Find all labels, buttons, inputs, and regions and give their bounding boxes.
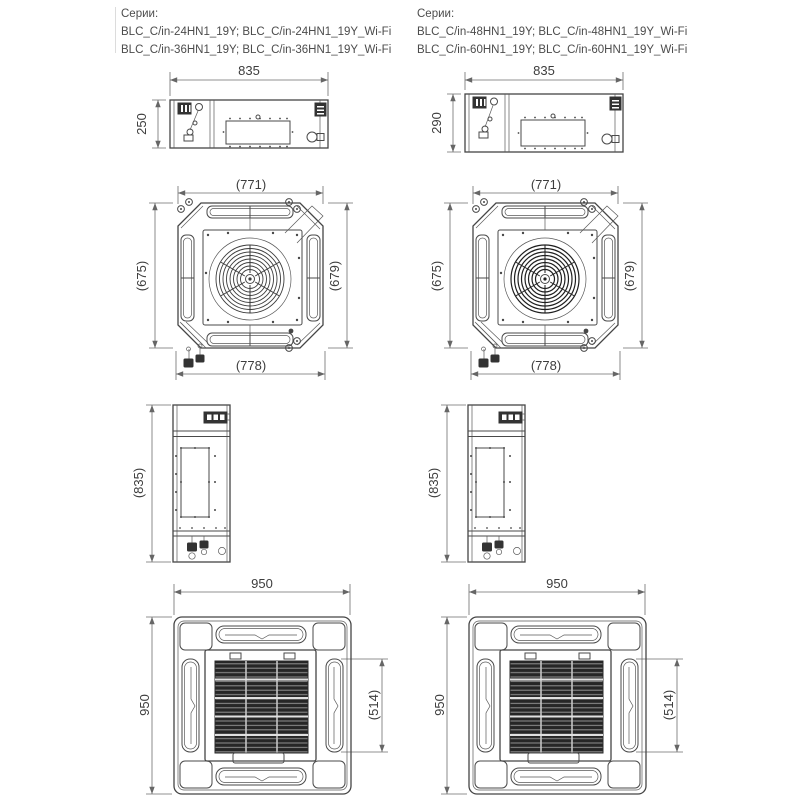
corner-mounts [178, 199, 301, 352]
chassis-view-right: (771) (675) (679) (778) [418, 173, 650, 385]
dim-body-width: 835 [238, 63, 260, 78]
body-side-view-left: 835 250 [126, 58, 351, 170]
decorative-panel-view-left: 950 950 (514) [136, 575, 398, 797]
column-divider-line [115, 7, 116, 53]
dimensions: 835 250 [134, 63, 328, 148]
series-models-line: BLC_C/in-48HN1_19Y; BLC_C/in-48HN1_19Y_W… [417, 23, 687, 41]
louver-left [181, 235, 194, 321]
dim-chassis-left: (675) [429, 261, 444, 291]
louver-top [207, 206, 293, 218]
series-label: Серии: [121, 5, 391, 23]
dim-body-width: 835 [533, 63, 555, 78]
series-block-right: Серии: BLC_C/in-48HN1_19Y; BLC_C/in-48HN… [417, 5, 687, 59]
vent-top [216, 626, 306, 643]
dim-chassis-right: (679) [327, 261, 342, 291]
dimensions: (835) [426, 405, 466, 562]
vent-left [477, 659, 494, 752]
dim-chassis-top: (771) [236, 177, 266, 192]
body-profile-view-right: (835) [423, 392, 543, 574]
dimensions: 835 290 [429, 63, 623, 152]
vent-bottom [511, 768, 601, 785]
refrigerant-valves [483, 536, 521, 559]
screw-dots [223, 118, 294, 148]
unit-body [170, 100, 328, 148]
body-profile-view-left: (835) [128, 392, 248, 574]
refrigerant-valves [475, 322, 503, 367]
fan [209, 238, 291, 320]
unit-body [465, 94, 623, 152]
refrigerant-valves [188, 536, 226, 559]
louver-right [307, 235, 320, 321]
screw-dots [518, 117, 589, 150]
vent-right [326, 659, 343, 752]
dim-chassis-bottom: (778) [531, 358, 561, 373]
louver-left [476, 235, 489, 321]
unit-profile [468, 405, 525, 562]
dimensions: (835) [131, 405, 171, 562]
series-block-left: Серии: BLC_C/in-24HN1_19Y; BLC_C/in-24HN… [121, 5, 391, 59]
louver-top [502, 206, 588, 218]
chassis-body [178, 199, 323, 367]
dim-body-height: 290 [429, 112, 444, 134]
technical-drawings-page: Серии: BLC_C/in-24HN1_19Y; BLC_C/in-24HN… [0, 0, 800, 800]
refrigerant-valves [180, 322, 208, 367]
corner-mounts [473, 199, 596, 352]
dim-panel-width: 950 [251, 576, 273, 591]
dim-chassis-bottom: (778) [236, 358, 266, 373]
louver-bottom [502, 333, 588, 346]
intake-grille [510, 661, 603, 753]
dim-panel-width: 950 [546, 576, 568, 591]
louver-right [602, 235, 615, 321]
series-models-line: BLC_C/in-36HN1_19Y; BLC_C/in-36HN1_19Y_W… [121, 41, 391, 59]
dim-panel-height: 950 [432, 694, 447, 716]
chassis-view-left: (771) (675) (679) (778) [123, 173, 355, 385]
decorative-panel-view-right: 950 950 (514) [431, 575, 693, 797]
unit-profile [173, 405, 230, 562]
dim-panel-height: 950 [137, 694, 152, 716]
body-side-view-right: 835 290 [421, 58, 646, 170]
dim-profile-height: (835) [131, 468, 146, 498]
vent-bottom [216, 768, 306, 785]
dim-grille-height: (514) [366, 690, 381, 720]
intake-grille [215, 661, 308, 753]
vent-right [621, 659, 638, 752]
dim-chassis-right: (679) [622, 261, 637, 291]
series-models-line: BLC_C/in-24HN1_19Y; BLC_C/in-24HN1_19Y_W… [121, 23, 391, 41]
dim-grille-height: (514) [661, 690, 676, 720]
vent-left [182, 659, 199, 752]
panel-body [174, 617, 351, 794]
dim-chassis-left: (675) [134, 261, 149, 291]
vent-top [511, 626, 601, 643]
louver-bottom [207, 333, 293, 346]
dim-profile-height: (835) [426, 468, 441, 498]
series-models-line: BLC_C/in-60HN1_19Y; BLC_C/in-60HN1_19Y_W… [417, 41, 687, 59]
dim-chassis-top: (771) [531, 177, 561, 192]
panel-body [469, 617, 646, 794]
dim-body-height: 250 [134, 113, 149, 135]
series-label: Серии: [417, 5, 687, 23]
fan [504, 238, 586, 320]
chassis-body [473, 199, 618, 367]
